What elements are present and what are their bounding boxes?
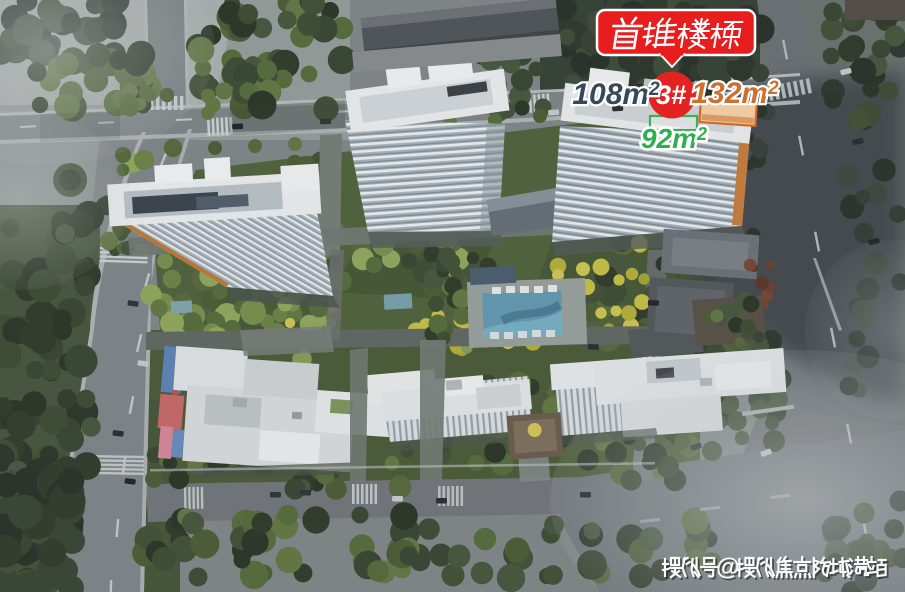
svg-text:@: @ [716, 554, 739, 581]
svg-text:108m2: 108m2 [572, 78, 660, 111]
svg-text:132m2: 132m2 [691, 77, 779, 110]
svg-text:3#: 3# [656, 80, 686, 110]
